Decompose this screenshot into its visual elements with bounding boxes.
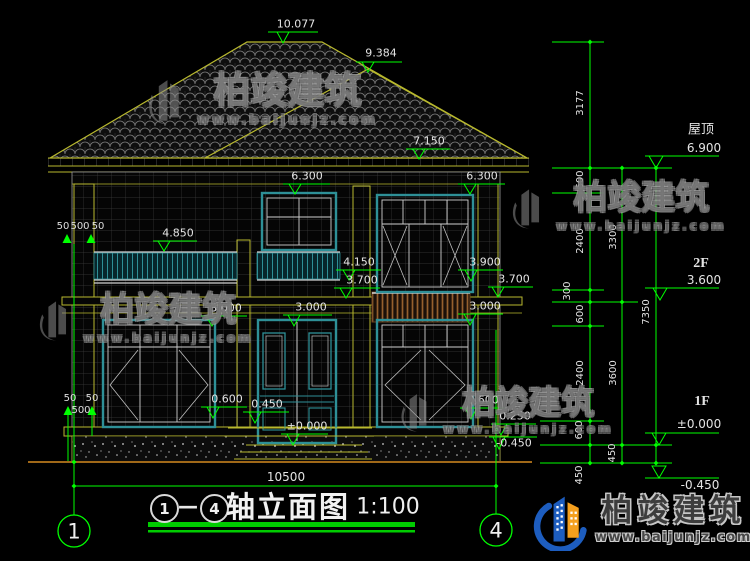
cad-elevation-drawing: 10.077 9.384 7.150 6.300 6.300 4.850 4.1… xyxy=(0,0,750,561)
brand-logo-text: 柏竣建筑 xyxy=(601,496,745,527)
dim-sill-left: 0.600 xyxy=(211,394,243,405)
roof-group xyxy=(48,42,529,172)
dim-plinth: 0.250 xyxy=(499,411,531,422)
caption-dash: — xyxy=(178,494,198,518)
chain1-seg4: 300 xyxy=(563,281,573,300)
dim-pier-top-b: 500 xyxy=(70,222,89,232)
dim-door-head: 3.000 xyxy=(295,302,327,313)
right-dim-chains xyxy=(540,42,719,478)
railing-small-window xyxy=(257,252,340,280)
chain1-seg8: 450 xyxy=(575,465,585,484)
dim-peak-secondary: 9.384 xyxy=(365,48,397,59)
chain1-seg5: 600 xyxy=(576,304,586,323)
dim-pier-top-c: 50 xyxy=(92,222,105,232)
dim-overall-width: 10500 xyxy=(267,471,305,483)
chain2-seg2: 3600 xyxy=(609,360,619,385)
chain1-seg6: 2400 xyxy=(576,360,586,385)
dim-win2f-head-left: 6.300 xyxy=(291,171,323,182)
dim-ground: -0.450 xyxy=(496,438,531,449)
dim-balcony-rail: 4.850 xyxy=(162,228,194,239)
dim-peak-main: 10.077 xyxy=(277,19,316,30)
level-1f-value: ±0.000 xyxy=(677,418,721,430)
axis-bubble-1: 1 xyxy=(67,522,80,543)
level-2f-name: 2F xyxy=(693,257,709,271)
brand-logo-icon xyxy=(533,489,589,551)
dim-floor-1f: ±0.000 xyxy=(287,421,328,432)
caption-axis-to-num: 4 xyxy=(209,500,219,518)
dim-win2f-sill-right: 3.900 xyxy=(469,257,501,268)
chain2-seg1: 3300 xyxy=(609,224,619,249)
drawing-title: 轴立面图 xyxy=(226,484,350,526)
caption-axis-from: 1 xyxy=(150,494,179,523)
level-1f-name: 1F xyxy=(694,395,710,409)
dim-pier-bot-c: 500 xyxy=(71,406,90,416)
dim-porch: 0.450 xyxy=(251,399,283,410)
level-roof-name: 屋顶 xyxy=(688,124,714,137)
dim-win2f-head-right: 6.300 xyxy=(466,171,498,182)
chain1-seg7: 600 xyxy=(575,420,585,439)
dim-roof-secondary: 7.150 xyxy=(413,136,445,147)
axis-bubble-4: 4 xyxy=(489,521,502,542)
chain2-seg3: 450 xyxy=(608,443,618,462)
level-2f-value: 3.600 xyxy=(687,274,721,286)
caption-axis-from-num: 1 xyxy=(159,500,169,518)
dim-pier-bot-a: 50 xyxy=(64,394,77,404)
brand-logo-site: www.baijunjz.com xyxy=(595,530,750,545)
level-roof-value: 6.900 xyxy=(687,142,721,154)
dim-slab-left: 3.700 xyxy=(346,275,378,286)
dim-win1f-head-right: 3.000 xyxy=(469,301,501,312)
railing-brown-2f xyxy=(372,292,470,322)
dim-slab-right: 3.700 xyxy=(498,274,530,285)
dim-pier-top-a: 50 xyxy=(57,222,70,232)
brand-logo: 柏竣建筑 www.baijunjz.com xyxy=(533,489,750,551)
chain1-seg3: 2400 xyxy=(576,228,586,253)
drawing-scale: 1:100 xyxy=(356,495,419,520)
balcony-railing xyxy=(94,252,237,283)
chain1-seg2: 600 xyxy=(576,170,586,189)
dim-small-rail: 4.150 xyxy=(343,257,375,268)
dim-sill-right: 0.600 xyxy=(467,395,499,406)
chain1-seg1: 3177 xyxy=(576,90,586,115)
dim-win1f-head-left: 3.000 xyxy=(210,303,242,314)
caption-axis-to: 4 xyxy=(200,494,229,523)
chain3-seg1: 7350 xyxy=(642,299,652,324)
dim-pier-bot-b: 50 xyxy=(86,394,99,404)
